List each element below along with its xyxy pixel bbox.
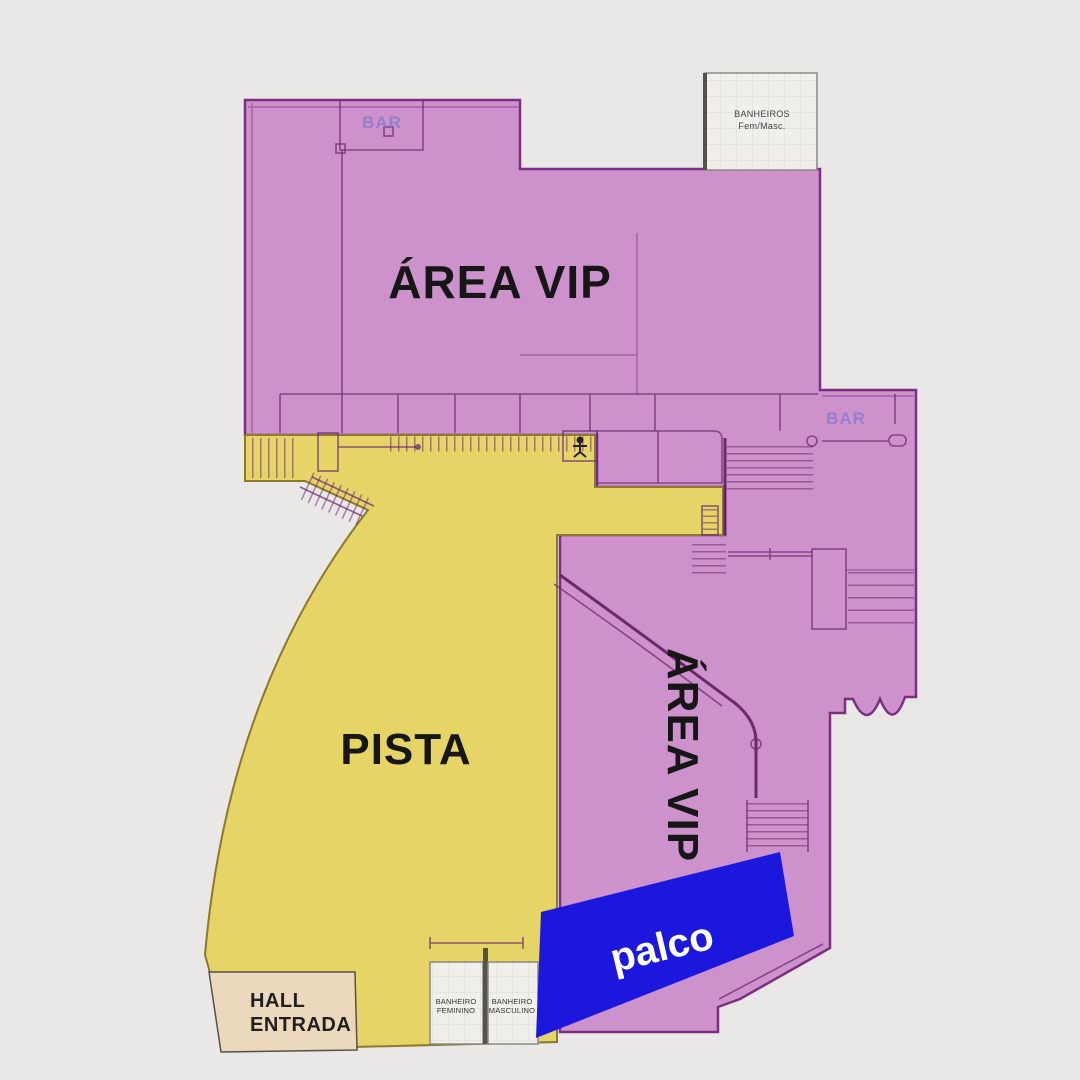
area-vip-top-label: ÁREA VIP [388,256,612,308]
banheiros-top-sublabel: Fem/Masc. [738,121,785,131]
floor-plan: BANHEIROS Fem/Masc. BANHEIRO FEMININO BA… [0,0,1080,1080]
stair-direction-dot [415,444,421,450]
banheiro-masculino-sublabel: MASCULINO [489,1006,535,1015]
banheiro-feminino-sublabel: FEMININO [437,1006,475,1015]
banheiros-top-label: BANHEIROS [734,109,790,119]
area-vip-right-label: ÁREA VIP [658,648,708,862]
banheiro-masculino-box: BANHEIRO MASCULINO [488,962,538,1044]
floor-plan-canvas: BANHEIROS Fem/Masc. BANHEIRO FEMININO BA… [0,0,1080,1080]
figure-icon [577,437,584,444]
bar-right-label: BAR [826,409,866,428]
pista-label: PISTA [340,725,471,774]
banheiro-feminino-box: BANHEIRO FEMININO [430,962,483,1044]
banheiros-top-box: BANHEIROS Fem/Masc. [705,73,817,170]
hall-entrada-box: HALL ENTRADA [209,972,357,1052]
hall-entrada-label: HALL [250,990,305,1012]
hall-entrada-sublabel: ENTRADA [250,1014,351,1036]
banheiro-masculino-label: BANHEIRO [492,997,533,1006]
bar-top-label: BAR [362,113,402,132]
banheiro-feminino-label: BANHEIRO [436,997,477,1006]
